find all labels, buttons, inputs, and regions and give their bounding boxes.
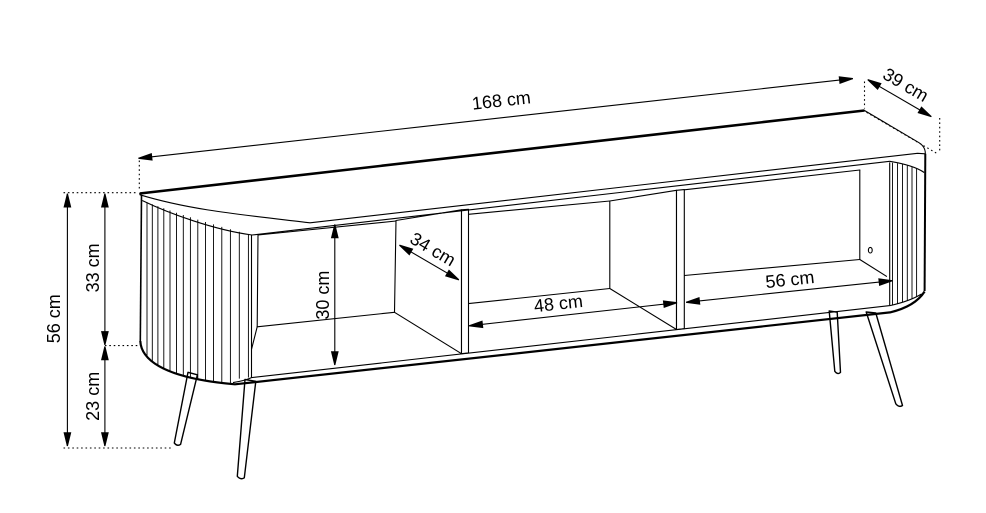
svg-text:23 cm: 23 cm (83, 372, 103, 421)
svg-text:56 cm: 56 cm (44, 294, 64, 343)
svg-text:33 cm: 33 cm (83, 243, 103, 292)
svg-text:30 cm: 30 cm (313, 271, 333, 320)
